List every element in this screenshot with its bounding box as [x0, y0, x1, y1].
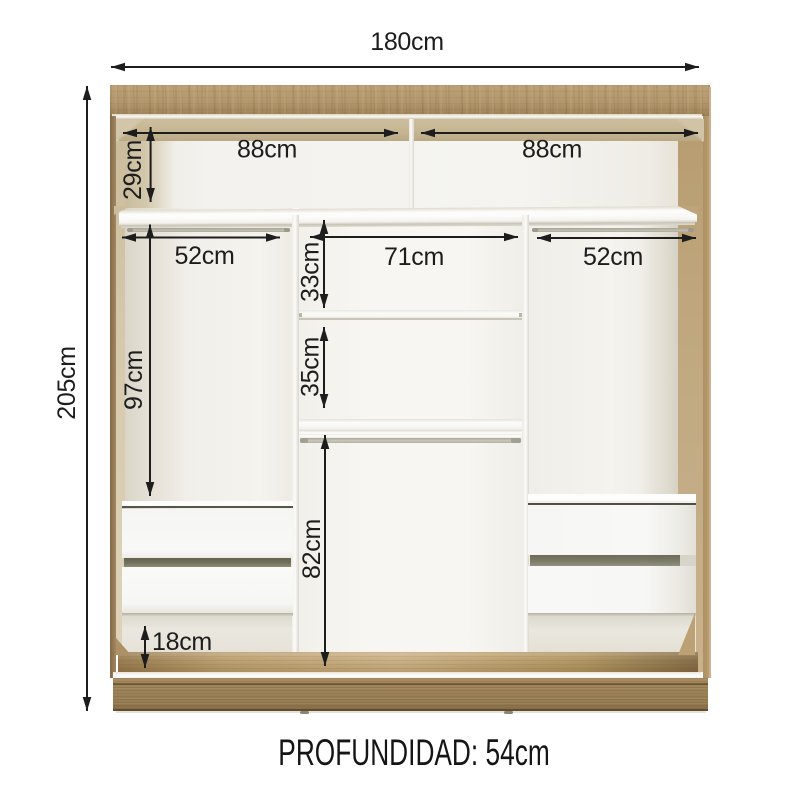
svg-text:29cm: 29cm — [119, 140, 147, 200]
svg-text:52cm: 52cm — [175, 242, 235, 270]
svg-text:88cm: 88cm — [237, 136, 297, 164]
svg-text:33cm: 33cm — [297, 242, 325, 302]
svg-text:71cm: 71cm — [384, 243, 444, 271]
svg-text:18cm: 18cm — [152, 628, 212, 656]
svg-text:PROFUNDIDAD: 54cm: PROFUNDIDAD: 54cm — [278, 732, 549, 774]
svg-text:82cm: 82cm — [298, 519, 326, 579]
svg-text:205cm: 205cm — [53, 346, 81, 420]
svg-text:180cm: 180cm — [370, 28, 444, 56]
svg-text:52cm: 52cm — [583, 243, 643, 271]
svg-text:35cm: 35cm — [297, 337, 325, 397]
svg-text:97cm: 97cm — [120, 350, 148, 410]
svg-text:88cm: 88cm — [522, 136, 582, 164]
